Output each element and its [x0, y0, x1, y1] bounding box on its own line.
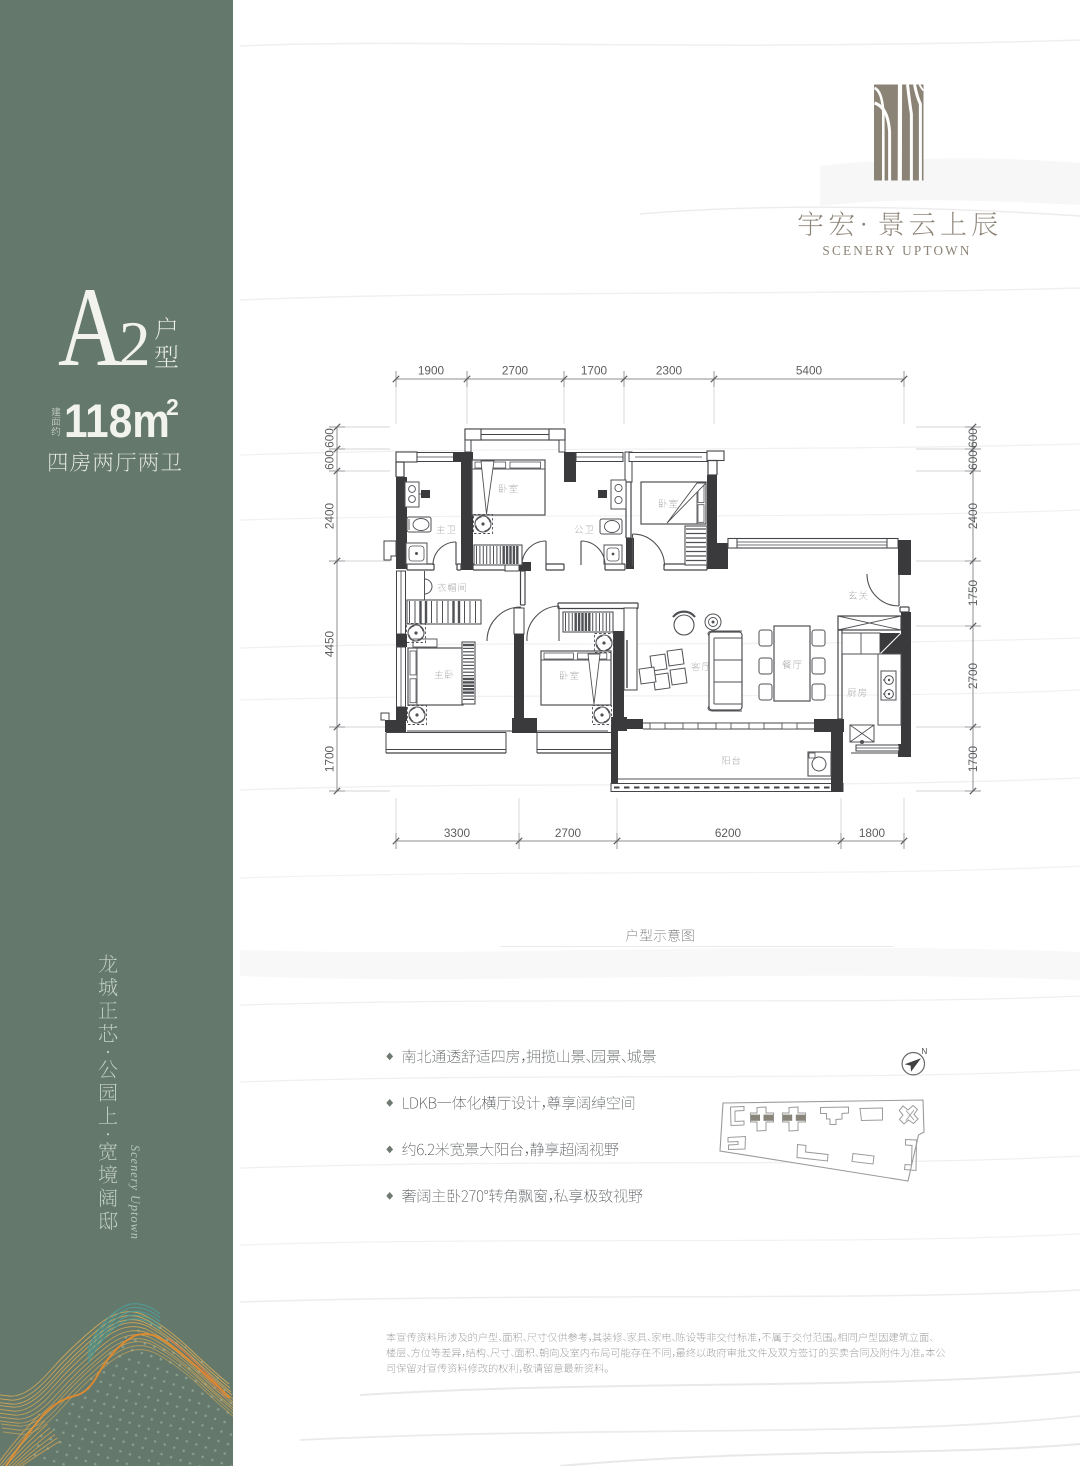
svg-text:Scenery Uptown: Scenery Uptown: [128, 1145, 142, 1240]
svg-text:2400: 2400: [966, 502, 980, 529]
svg-text:6200: 6200: [715, 826, 742, 840]
svg-text:2: 2: [119, 309, 151, 379]
svg-text:600: 600: [966, 450, 980, 470]
svg-text:1750: 1750: [966, 579, 980, 606]
svg-text:A: A: [58, 266, 123, 391]
svg-text:2700: 2700: [966, 662, 980, 689]
svg-text:4450: 4450: [323, 630, 337, 657]
svg-text:1700: 1700: [966, 745, 980, 772]
svg-text:2700: 2700: [555, 826, 582, 840]
svg-text:1700: 1700: [581, 364, 608, 378]
svg-text:3300: 3300: [444, 826, 471, 840]
svg-text:2: 2: [166, 394, 179, 420]
svg-text:600: 600: [323, 450, 337, 470]
svg-text:SCENERY UPTOWN: SCENERY UPTOWN: [822, 243, 971, 258]
svg-text:600: 600: [323, 428, 337, 448]
svg-text:1700: 1700: [323, 745, 337, 772]
svg-text:N: N: [922, 1047, 928, 1056]
svg-text:2300: 2300: [656, 364, 683, 378]
svg-text:2400: 2400: [323, 502, 337, 529]
svg-text:2700: 2700: [502, 364, 529, 378]
svg-text:1800: 1800: [859, 826, 886, 840]
svg-text:1900: 1900: [418, 364, 445, 378]
svg-text:600: 600: [966, 428, 980, 448]
svg-text:118m: 118m: [64, 396, 170, 448]
svg-text:5400: 5400: [796, 364, 823, 378]
